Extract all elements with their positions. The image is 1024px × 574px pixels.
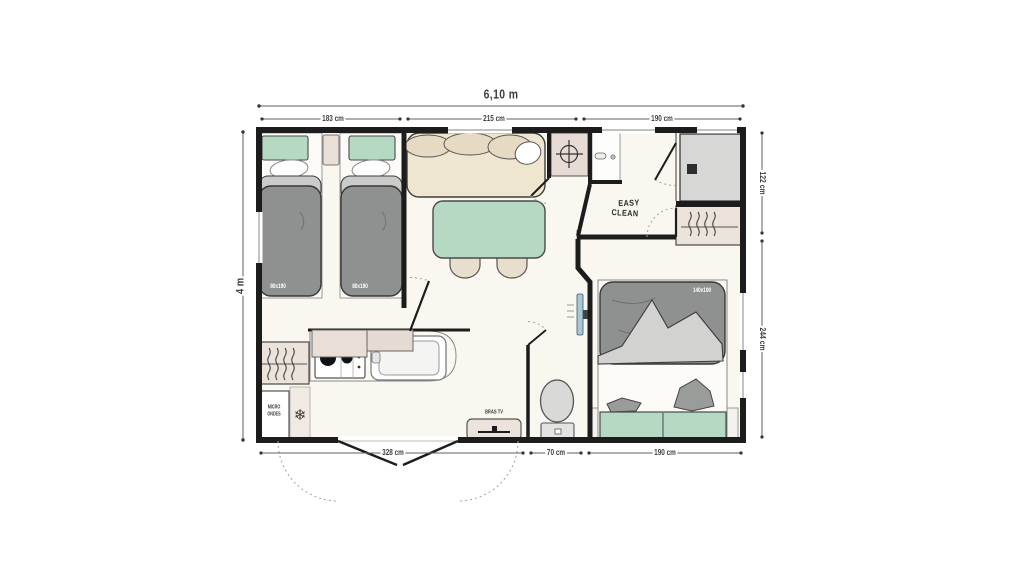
toilet-bowl	[541, 380, 574, 422]
knob-icon	[358, 366, 361, 369]
single-bed-2-headboard	[349, 136, 395, 160]
dining-table	[433, 201, 545, 258]
microwave-label-line1: MICRO	[268, 406, 281, 411]
snowflake-icon: ❄	[294, 407, 307, 424]
dim-bottom-2-label: 70 cm	[545, 449, 566, 457]
drain-dot-icon	[611, 155, 615, 159]
total-width-label: 6,10 m	[482, 88, 520, 101]
total-height-label: 4 m	[236, 276, 247, 296]
dim-top-3-label: 190 cm	[650, 115, 675, 123]
wall-tv	[577, 294, 583, 335]
dim-top-2-label: 215 cm	[482, 115, 507, 123]
single-bed-1-size-label: 80x190	[270, 284, 286, 290]
shower-drain-icon	[687, 164, 697, 174]
dim-bottom-1-label: 328 cm	[381, 449, 406, 457]
tv-bracket	[583, 310, 588, 319]
nightstand	[323, 135, 339, 165]
tap-icon	[595, 153, 606, 159]
door-swing-arc	[458, 441, 518, 501]
wall-cabinet	[312, 330, 367, 357]
single-bed-2-duvet	[341, 186, 402, 296]
bedside-table	[727, 408, 738, 438]
dim-bottom-3-label: 190 cm	[653, 449, 678, 457]
single-bed-1-duvet	[259, 186, 321, 296]
dim-top-1-label: 183 cm	[321, 115, 346, 123]
floor-plan: ❄	[0, 0, 1024, 574]
single-bed-2-size-label: 80x190	[352, 284, 368, 290]
tv-stand	[492, 426, 497, 432]
dim-right-2-label: 244 cm	[758, 326, 766, 352]
double-bed-size-label: 140x190	[693, 288, 711, 294]
easy-clean-logo-line1: EASY	[618, 198, 640, 207]
flush-button-icon	[555, 429, 561, 434]
wall-cabinet	[367, 330, 413, 351]
faucet-icon	[372, 352, 380, 363]
wardrobe-right	[676, 206, 743, 245]
tv-bracket-label: BRAS TV	[485, 410, 503, 416]
door-swing-arc	[278, 441, 338, 501]
easy-clean-logo-line2: CLEAN	[611, 208, 638, 218]
single-bed-1-headboard	[262, 136, 308, 160]
dim-right-1-label: 122 cm	[758, 170, 766, 196]
microwave-label-line2: ONDES	[267, 413, 280, 418]
